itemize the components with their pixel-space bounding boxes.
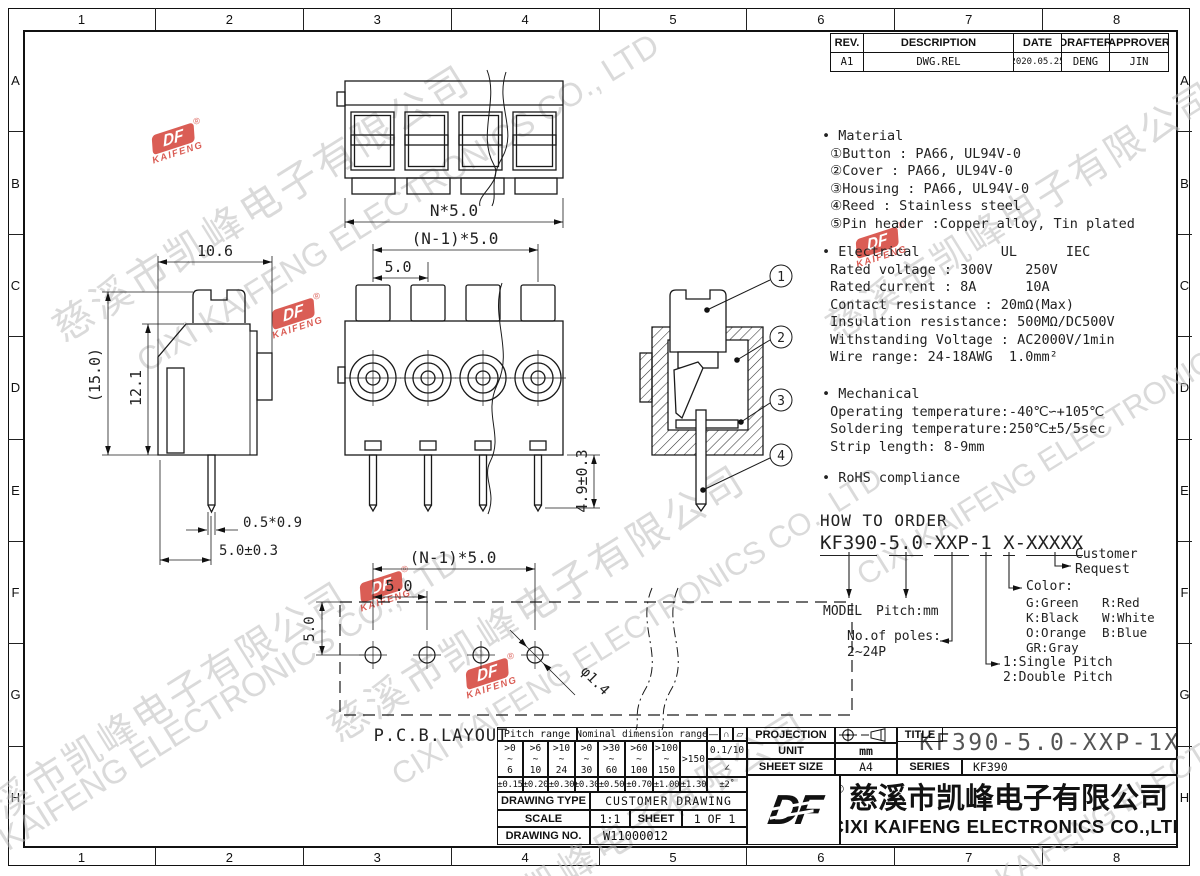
drawing-type-value: CUSTOMER DRAWING — [590, 792, 747, 810]
order-model-label: MODEL — [823, 604, 862, 619]
order-code-model: KF390 — [820, 532, 877, 556]
tolerance-cell: ±0.50 — [598, 777, 625, 792]
tolerance-cell: ±0.30 — [575, 777, 598, 792]
dimension-labels: N*5.0 (N-1)*5.0 5.0 4.9±0.3 10.6 (15.0) … — [86, 201, 785, 746]
nominal-range-header: Nominal dimension range — [577, 727, 707, 741]
company-name-cn: 慈溪市凯峰电子有限公司 — [849, 782, 1168, 816]
projection-label: PROJECTION — [747, 727, 835, 743]
top-view — [337, 70, 563, 206]
electrical-notes: • Electrical UL IEC Rated voltage : 300V… — [822, 244, 1115, 367]
tolerance-cell: ±0.70 — [625, 777, 653, 792]
order-custom-label-2: Request — [1075, 562, 1130, 577]
unit-value: mm — [835, 743, 897, 759]
range-cell: >10 ~ 24 — [548, 741, 575, 777]
order-color-options: G:GreenR:Red K:BlackW:White O:OrangeB:Bl… — [1026, 595, 1155, 655]
company-logo-cell: DF — [747, 775, 840, 845]
rohs-note: • RoHS compliance — [822, 470, 960, 488]
dim-pin-row: 5.0±0.3 — [219, 543, 278, 559]
dim-pcb-total: (N-1)*5.0 — [410, 548, 497, 567]
engineering-drawing-sheet: 慈溪市凯峰电子有限公司 CIXI KAIFENG ELECTRONICS CO.… — [0, 0, 1200, 876]
title-label: TITLE — [898, 728, 943, 742]
dim-pcb-hole: φ1.4 — [577, 664, 612, 699]
symbol-arc: ∩ — [720, 727, 733, 741]
tolerance-cell: ±1.00 — [653, 777, 680, 792]
order-poles-range: 2~24P — [847, 645, 886, 660]
side-view — [158, 290, 272, 512]
range-cell: >30 ~ 60 — [598, 741, 625, 777]
order-pitch-label: Pitch:mm — [876, 604, 939, 619]
first-angle-projection-icon — [838, 728, 894, 742]
rev-value: A1 — [830, 52, 864, 72]
pcb-layout-view — [340, 588, 852, 730]
dimension-lines — [102, 198, 600, 695]
angle-tolerance: ±2˚ — [707, 777, 747, 792]
rev-header: DRAFTER — [1061, 33, 1110, 53]
flatness-tolerance: 0.1/10 — [707, 741, 747, 759]
range-cell: >100 ~ 150 — [653, 741, 680, 777]
dim-top-total: N*5.0 — [430, 201, 478, 220]
pitch-range-header: Pitch range — [497, 727, 577, 741]
dim-side-width: 10.6 — [197, 242, 233, 260]
order-code-pitchtype: 1 — [980, 532, 991, 556]
mechanical-notes: • Mechanical Operating temperature:-40℃∽… — [822, 386, 1105, 456]
tolerance-cell: ±0.20 — [523, 777, 548, 792]
range-cell: >0 ~ 6 — [497, 741, 523, 777]
order-code-pitch: 5.0 — [889, 532, 923, 556]
company-name-cell: ® 慈溪市凯峰电子有限公司 CIXI KAIFENG ELECTRONICS C… — [840, 775, 1177, 845]
drawing-no-value: W11000012 — [590, 827, 747, 845]
angle-symbol: ∠ — [707, 759, 747, 777]
scale-label: SCALE — [497, 810, 590, 827]
how-to-order-title: HOW TO ORDER — [820, 511, 948, 530]
order-code-poles: XXP — [934, 532, 968, 556]
dim-front-pitch: 5.0 — [384, 258, 411, 276]
sheet-size-value: A4 — [835, 759, 897, 775]
rev-value: JIN — [1109, 52, 1169, 72]
sheet-size-label: SHEET SIZE — [747, 759, 835, 775]
company-name-en: CIXI KAIFENG ELECTRONICS CO.,LTD — [840, 816, 1177, 838]
projection-symbol-cell — [835, 727, 897, 743]
dim-pcb-pitch: 5.0 — [385, 577, 412, 595]
section-view — [640, 290, 763, 511]
dim-side-height-body: 12.1 — [127, 370, 145, 406]
rev-header: DESCRIPTION — [863, 33, 1014, 53]
front-view — [338, 283, 566, 514]
tolerance-cell: ±1.30 — [680, 777, 707, 792]
callout-3: 3 — [777, 394, 785, 409]
symbol-flat: — — [707, 727, 720, 741]
series-value: KF390 — [962, 759, 1177, 775]
tolerance-cell: ±0.30 — [548, 777, 575, 792]
range-cell: >60 ~ 100 — [625, 741, 653, 777]
order-custom-label-1: Customer — [1075, 547, 1138, 562]
df-logo-icon: DF — [764, 786, 822, 834]
order-pitchtype-single: 1:Single Pitch — [1003, 655, 1113, 670]
dim-pcb-row: 5.0 — [302, 616, 318, 641]
callout-4: 4 — [777, 449, 785, 464]
tolerance-cell: ±0.15 — [497, 777, 523, 792]
order-code: KF390-5.0-XXP-1 X-XXXXX — [820, 532, 1083, 554]
scale-value: 1:1 — [590, 810, 630, 827]
drawing-no-label: DRAWING NO. — [497, 827, 590, 845]
rev-value: 2020.05.25 — [1013, 52, 1062, 72]
dim-pin-section: 0.5*0.9 — [243, 515, 302, 531]
material-notes: • Material ①Button : PA66, UL94V-0 ②Cove… — [822, 128, 1135, 233]
rev-value: DWG.REL — [863, 52, 1014, 72]
order-pitchtype-double: 2:Double Pitch — [1003, 670, 1113, 685]
order-poles-label: No.of poles: — [847, 629, 941, 644]
rev-header: REV. — [830, 33, 864, 53]
pcb-layout-label: P.C.B.LAYOUT — [374, 726, 509, 746]
callout-2: 2 — [777, 331, 785, 346]
drawing-type-label: DRAWING TYPE — [497, 792, 590, 810]
rev-value: DENG — [1061, 52, 1110, 72]
symbol-square: ▱ — [733, 727, 747, 741]
title-cell: TITLE KF390-5.0-XXP-1X — [897, 727, 1177, 759]
sheet-value: 1 OF 1 — [682, 810, 747, 827]
dim-pin-length: 4.9±0.3 — [573, 449, 591, 512]
rev-header: DATE — [1013, 33, 1062, 53]
range-cell: >0 ~ 30 — [575, 741, 598, 777]
range-cell: >6 ~ 10 — [523, 741, 548, 777]
rev-header: APPROVER — [1109, 33, 1169, 53]
unit-label: UNIT — [747, 743, 835, 759]
registered-mark: ® — [840, 782, 844, 796]
order-code-color: X — [1003, 532, 1014, 556]
sheet-label: SHEET — [630, 810, 682, 827]
series-label: SERIES — [897, 759, 962, 775]
order-color-label: Color: — [1026, 579, 1073, 594]
dim-front-total: (N-1)*5.0 — [412, 229, 499, 248]
callout-1: 1 — [777, 270, 785, 285]
dim-side-height-overall: (15.0) — [86, 348, 104, 402]
range-cell: >150 — [680, 741, 707, 777]
